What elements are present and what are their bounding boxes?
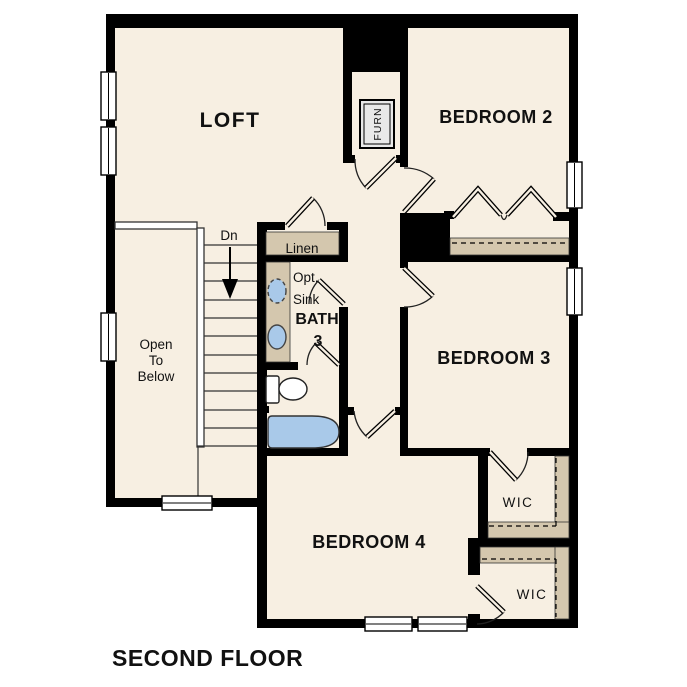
sink-icon xyxy=(268,325,286,349)
furnace-unit: FURN xyxy=(360,100,394,148)
wic1-shelf-bottom xyxy=(488,522,569,538)
open-below-label-line1: Open xyxy=(139,337,172,352)
stair-stringer xyxy=(197,228,204,447)
optional-sink-icon xyxy=(268,279,286,303)
wic1-label: WIC xyxy=(503,495,534,510)
bedroom2-label: BEDROOM 2 xyxy=(439,107,553,127)
floor-plan-second-floor: FURN xyxy=(0,0,687,687)
wic2-label: WIC xyxy=(517,587,548,602)
stairs-dn-label: Dn xyxy=(220,228,237,243)
window xyxy=(101,313,116,361)
bedroom3-label: BEDROOM 3 xyxy=(437,348,551,368)
railing xyxy=(115,222,197,229)
opt-sink-label-line1: Opt. xyxy=(293,270,319,285)
window xyxy=(567,268,582,315)
window xyxy=(418,617,467,631)
bath-label-line2: 3 xyxy=(314,333,323,350)
linen-label: Linen xyxy=(285,241,318,256)
open-below-label-line2: To xyxy=(149,353,163,368)
opt-sink-label-line2: Sink xyxy=(293,292,320,307)
page-title: SECOND FLOOR xyxy=(112,645,303,671)
loft-label: LOFT xyxy=(200,109,261,132)
window xyxy=(567,162,582,208)
open-below-label-line3: Below xyxy=(138,369,175,384)
window xyxy=(365,617,412,631)
window xyxy=(101,127,116,175)
bedroom4-label: BEDROOM 4 xyxy=(312,532,426,552)
wic2-shelf-right xyxy=(555,547,569,619)
bath-label-line1: BATH xyxy=(295,311,338,328)
furnace-label: FURN xyxy=(372,107,384,140)
window xyxy=(101,72,116,120)
bedroom2-closet-shelf xyxy=(450,238,569,255)
bathtub-icon xyxy=(268,416,339,448)
window xyxy=(162,496,212,510)
